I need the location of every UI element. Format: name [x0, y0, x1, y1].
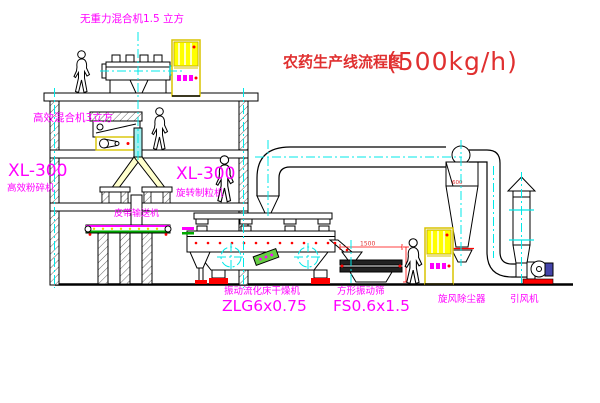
title-capacity: (500kg/h) — [387, 47, 518, 76]
sieve-width-dimension: 1500 — [360, 241, 375, 248]
granulator-right — [142, 187, 172, 203]
person-figure-ground — [405, 239, 422, 284]
title-text: 农药生产线流程图 — [282, 53, 403, 71]
y-splitter-chute — [111, 157, 166, 189]
vibration-mounts — [196, 219, 330, 231]
label-dryer-model: ZLG6x0.75 — [222, 297, 307, 315]
person-figure-2f — [152, 108, 168, 150]
label-granulator-model: XL-300 — [176, 164, 235, 184]
square-vibrating-sieve: 1500 — [330, 240, 409, 282]
fluid-bed-dryer — [182, 213, 335, 284]
label-mixer-2f: 高效混合机3立方 — [33, 111, 113, 124]
label-dryer-name: 振动流化床干燥机 — [224, 285, 301, 297]
process-flow-diagram: 1500 600 — [0, 0, 600, 403]
dryer-trough — [187, 231, 335, 252]
label-belt-conveyor: 皮带输送机 — [114, 207, 159, 219]
diagram-title: 农药生产线流程图 (500kg/h) — [282, 47, 518, 76]
second-floor-slab — [50, 150, 248, 158]
mixer-discharge-cone — [130, 80, 148, 93]
induced-draft-fan — [523, 261, 553, 284]
stack-tube — [513, 197, 530, 245]
label-cyclone: 旋风除尘器 — [438, 293, 486, 305]
cyclone-discharge — [452, 250, 472, 262]
label-pulverizer-name: 高效粉碎机 — [7, 182, 55, 194]
label-gravity-mixer: 无重力混合机1.5 立方 — [80, 12, 184, 25]
person-figure-roof — [74, 51, 90, 93]
gravity-free-mixer — [102, 55, 182, 93]
sieve-base — [350, 272, 392, 282]
label-pulverizer-model: XL-300 — [8, 161, 67, 181]
belt-conveyor — [85, 225, 171, 284]
label-sieve-model: FS0.6x1.5 — [333, 297, 410, 315]
label-fan: 引风机 — [510, 293, 539, 305]
conveyor-support-2 — [120, 233, 130, 284]
conveyor-support-3 — [142, 233, 152, 284]
dryer-foot-left — [212, 270, 225, 278]
granulator-left — [100, 187, 130, 203]
label-sieve-name: 方形振动筛 — [337, 285, 385, 297]
control-cabinet-roof — [172, 40, 200, 96]
conveyor-support-1 — [98, 233, 108, 284]
control-cabinet-ground — [425, 228, 453, 284]
roof-slab — [44, 93, 258, 101]
diagram-canvas: 1500 600 — [0, 0, 600, 403]
dryer-foot-right — [314, 270, 327, 278]
label-granulator-name: 旋转制粒机 — [176, 187, 224, 199]
